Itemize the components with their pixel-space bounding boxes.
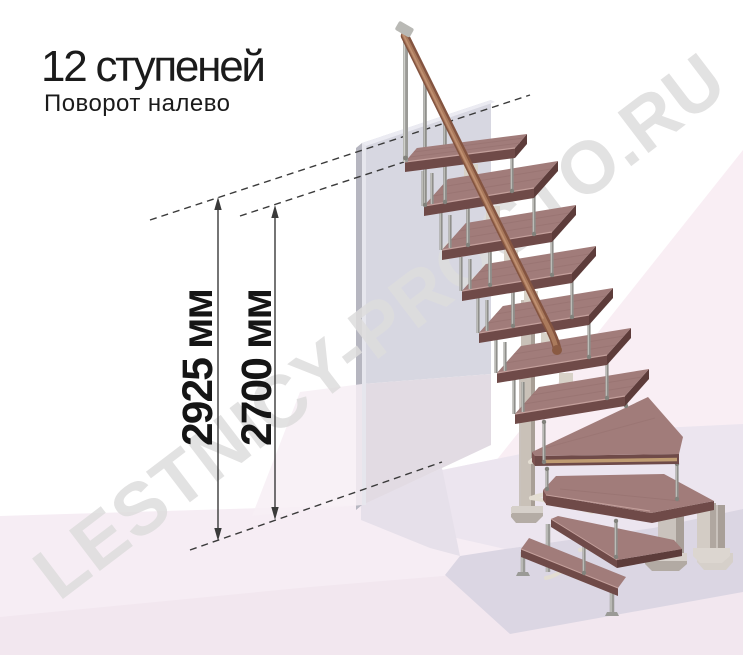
svg-text:Поворот налево: Поворот налево	[44, 90, 230, 117]
svg-text:12 ступеней: 12 ступеней	[41, 42, 266, 91]
svg-text:2700 мм: 2700 мм	[234, 288, 281, 446]
svg-text:2925 мм: 2925 мм	[175, 288, 222, 446]
